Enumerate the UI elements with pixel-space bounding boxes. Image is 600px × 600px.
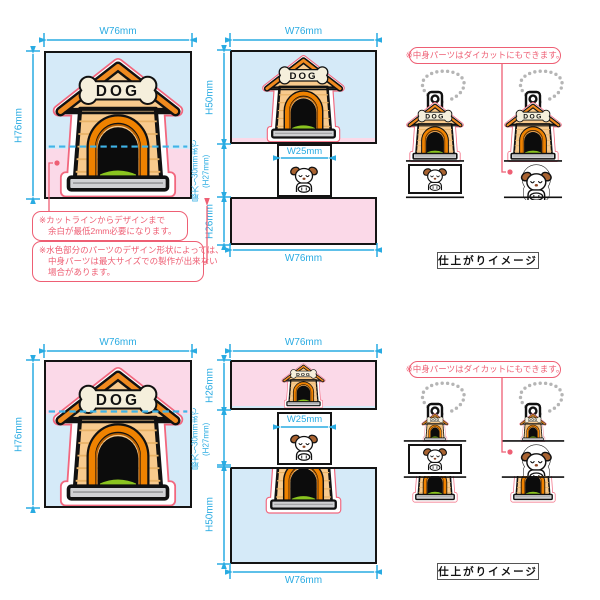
- dim-label-h27: (H27mm): [201, 402, 211, 476]
- dim-label-h50: H50mm: [204, 52, 216, 142]
- keychain-band-style-row1: [392, 68, 478, 228]
- spec-sheet: { "colors": { "dimension_cyan": "#29abe2…: [0, 0, 600, 600]
- split-diagram-bottom-piece-row1: [230, 197, 377, 245]
- insert-band: [408, 164, 462, 194]
- split-diagram-top-piece-row2: [230, 360, 377, 410]
- dim-label-w76: W76mm: [44, 337, 192, 348]
- split-diagram-bottom-piece-row2: [230, 467, 377, 564]
- full-body-diagram-row1: [44, 51, 192, 199]
- dim-label-h76: H76mm: [13, 51, 25, 199]
- dim-label-h26: H26mm: [204, 197, 216, 245]
- keychain-diecut-style-row2: [490, 380, 576, 540]
- insert-band: [408, 444, 462, 474]
- dim-label-w76: W76mm: [230, 26, 377, 37]
- keychain-band-style-row2: [392, 380, 478, 540]
- dim-label-max30: 最大〜30mmまで: [190, 402, 200, 476]
- full-body-diagram-row2: [44, 360, 192, 508]
- dim-label-w76: W76mm: [230, 253, 377, 264]
- dim-label-max30: 最大〜30mmまで: [190, 134, 200, 208]
- dim-label-w25: W25mm: [279, 414, 330, 425]
- dim-label-w76: W76mm: [230, 337, 377, 348]
- finished-image-caption: 仕上がりイメージ: [437, 563, 539, 580]
- split-diagram-top-piece-row1: [230, 50, 377, 144]
- note-diecut-option: ※中身パーツはダイカットにもできます。: [409, 361, 561, 378]
- dim-label-w76: W76mm: [44, 26, 192, 37]
- dim-label-h76: H76mm: [13, 360, 25, 508]
- keychain-diecut-style-row1: [490, 68, 576, 228]
- dim-label-w76: W76mm: [230, 575, 377, 586]
- note-cutline-margin: ※カットラインからデザインまで 余白が最低2mm必要になります。: [32, 211, 188, 241]
- dim-label-h50: H50mm: [204, 467, 216, 562]
- finished-image-caption: 仕上がりイメージ: [437, 252, 539, 269]
- dim-label-w25: W25mm: [279, 146, 330, 157]
- note-lightblue-parts: ※水色部分のパーツのデザイン形状によっては、 中身パーツは最大サイズでの製作が出…: [32, 241, 204, 282]
- note-diecut-option: ※中身パーツはダイカットにもできます。: [409, 47, 561, 64]
